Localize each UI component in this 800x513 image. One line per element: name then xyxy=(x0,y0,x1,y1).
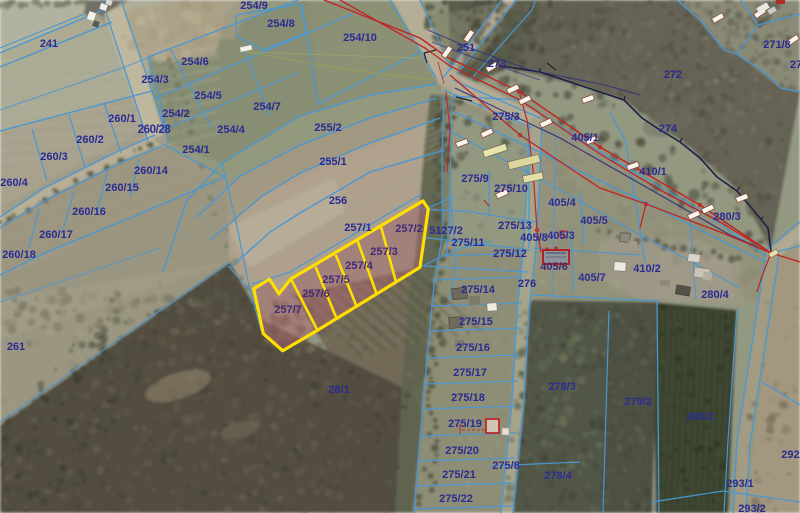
svg-text:275/19: 275/19 xyxy=(448,418,482,430)
svg-text:260/14: 260/14 xyxy=(134,165,169,177)
svg-text:260/18: 260/18 xyxy=(2,249,36,261)
svg-text:254/9: 254/9 xyxy=(240,0,268,12)
svg-text:276: 276 xyxy=(518,278,536,290)
svg-text:405/1: 405/1 xyxy=(571,132,599,144)
svg-text:280/4: 280/4 xyxy=(701,289,729,301)
svg-text:260/3: 260/3 xyxy=(40,151,68,163)
svg-text:257/7: 257/7 xyxy=(274,304,302,316)
svg-text:293/1: 293/1 xyxy=(726,478,754,490)
svg-text:275/9: 275/9 xyxy=(461,173,489,185)
svg-text:293/2: 293/2 xyxy=(738,503,766,513)
svg-text:260/4: 260/4 xyxy=(0,177,28,189)
svg-text:273: 273 xyxy=(488,58,506,70)
svg-text:27: 27 xyxy=(790,59,800,71)
svg-text:405/7: 405/7 xyxy=(578,272,606,284)
svg-text:275/17: 275/17 xyxy=(453,367,487,379)
svg-text:410/1: 410/1 xyxy=(639,166,667,178)
svg-text:275/21: 275/21 xyxy=(442,469,476,481)
svg-text:254/6: 254/6 xyxy=(181,56,209,68)
svg-text:254/3: 254/3 xyxy=(141,74,169,86)
svg-text:271/8: 271/8 xyxy=(763,39,791,51)
svg-text:405/3: 405/3 xyxy=(547,230,575,242)
svg-text:257/6: 257/6 xyxy=(302,288,330,300)
svg-text:274: 274 xyxy=(659,123,678,135)
svg-text:261: 261 xyxy=(7,341,25,353)
svg-text:260/15: 260/15 xyxy=(105,182,139,194)
svg-text:241: 241 xyxy=(40,38,58,50)
svg-text:292/: 292/ xyxy=(781,449,800,461)
svg-text:278/4: 278/4 xyxy=(544,470,572,482)
svg-text:257/2: 257/2 xyxy=(395,223,423,235)
svg-text:280/2: 280/2 xyxy=(686,411,714,423)
svg-text:279/2: 279/2 xyxy=(624,396,652,408)
svg-text:275/15: 275/15 xyxy=(459,316,493,328)
svg-text:256: 256 xyxy=(329,195,347,207)
svg-text:254/7: 254/7 xyxy=(253,101,281,113)
svg-text:254/1: 254/1 xyxy=(182,144,210,156)
svg-text:5127/2: 5127/2 xyxy=(429,225,463,237)
svg-text:255/1: 255/1 xyxy=(319,156,347,168)
svg-text:405/5: 405/5 xyxy=(580,215,608,227)
svg-text:405/8: 405/8 xyxy=(520,232,548,244)
svg-text:275/13: 275/13 xyxy=(498,220,532,232)
svg-text:254/5: 254/5 xyxy=(194,90,222,102)
svg-text:275/16: 275/16 xyxy=(456,342,490,354)
svg-text:257/1: 257/1 xyxy=(344,222,372,234)
svg-text:275/3: 275/3 xyxy=(492,111,520,123)
svg-text:260/1: 260/1 xyxy=(108,113,136,125)
svg-text:260/17: 260/17 xyxy=(39,229,73,241)
svg-text:257/3: 257/3 xyxy=(370,246,398,258)
svg-text:28/1: 28/1 xyxy=(328,384,349,396)
svg-text:254/8: 254/8 xyxy=(267,18,295,30)
svg-text:275/20: 275/20 xyxy=(445,445,479,457)
svg-text:275/11: 275/11 xyxy=(451,237,484,249)
svg-text:275/8: 275/8 xyxy=(492,460,520,472)
svg-text:275/22: 275/22 xyxy=(439,493,473,505)
svg-text:260/2: 260/2 xyxy=(76,134,104,146)
svg-text:257/4: 257/4 xyxy=(345,260,373,272)
svg-text:410/2: 410/2 xyxy=(633,263,661,275)
svg-text:251: 251 xyxy=(457,42,475,54)
svg-text:260/28: 260/28 xyxy=(138,124,172,136)
svg-text:405/6: 405/6 xyxy=(540,261,568,273)
svg-text:254/10: 254/10 xyxy=(343,32,377,44)
svg-text:275/18: 275/18 xyxy=(451,392,485,404)
svg-text:280/3: 280/3 xyxy=(713,211,741,223)
svg-text:254/4: 254/4 xyxy=(217,124,245,136)
svg-text:278/3: 278/3 xyxy=(548,381,576,393)
svg-text:260/16: 260/16 xyxy=(72,206,106,218)
svg-text:255/2: 255/2 xyxy=(314,122,342,134)
svg-text:405/4: 405/4 xyxy=(548,197,576,209)
svg-text:257/5: 257/5 xyxy=(322,274,350,286)
svg-text:275/14: 275/14 xyxy=(461,284,496,296)
svg-text:275/10: 275/10 xyxy=(494,183,528,195)
svg-text:272: 272 xyxy=(664,69,682,81)
svg-text:254/2: 254/2 xyxy=(162,108,190,120)
svg-text:275/12: 275/12 xyxy=(493,248,527,260)
